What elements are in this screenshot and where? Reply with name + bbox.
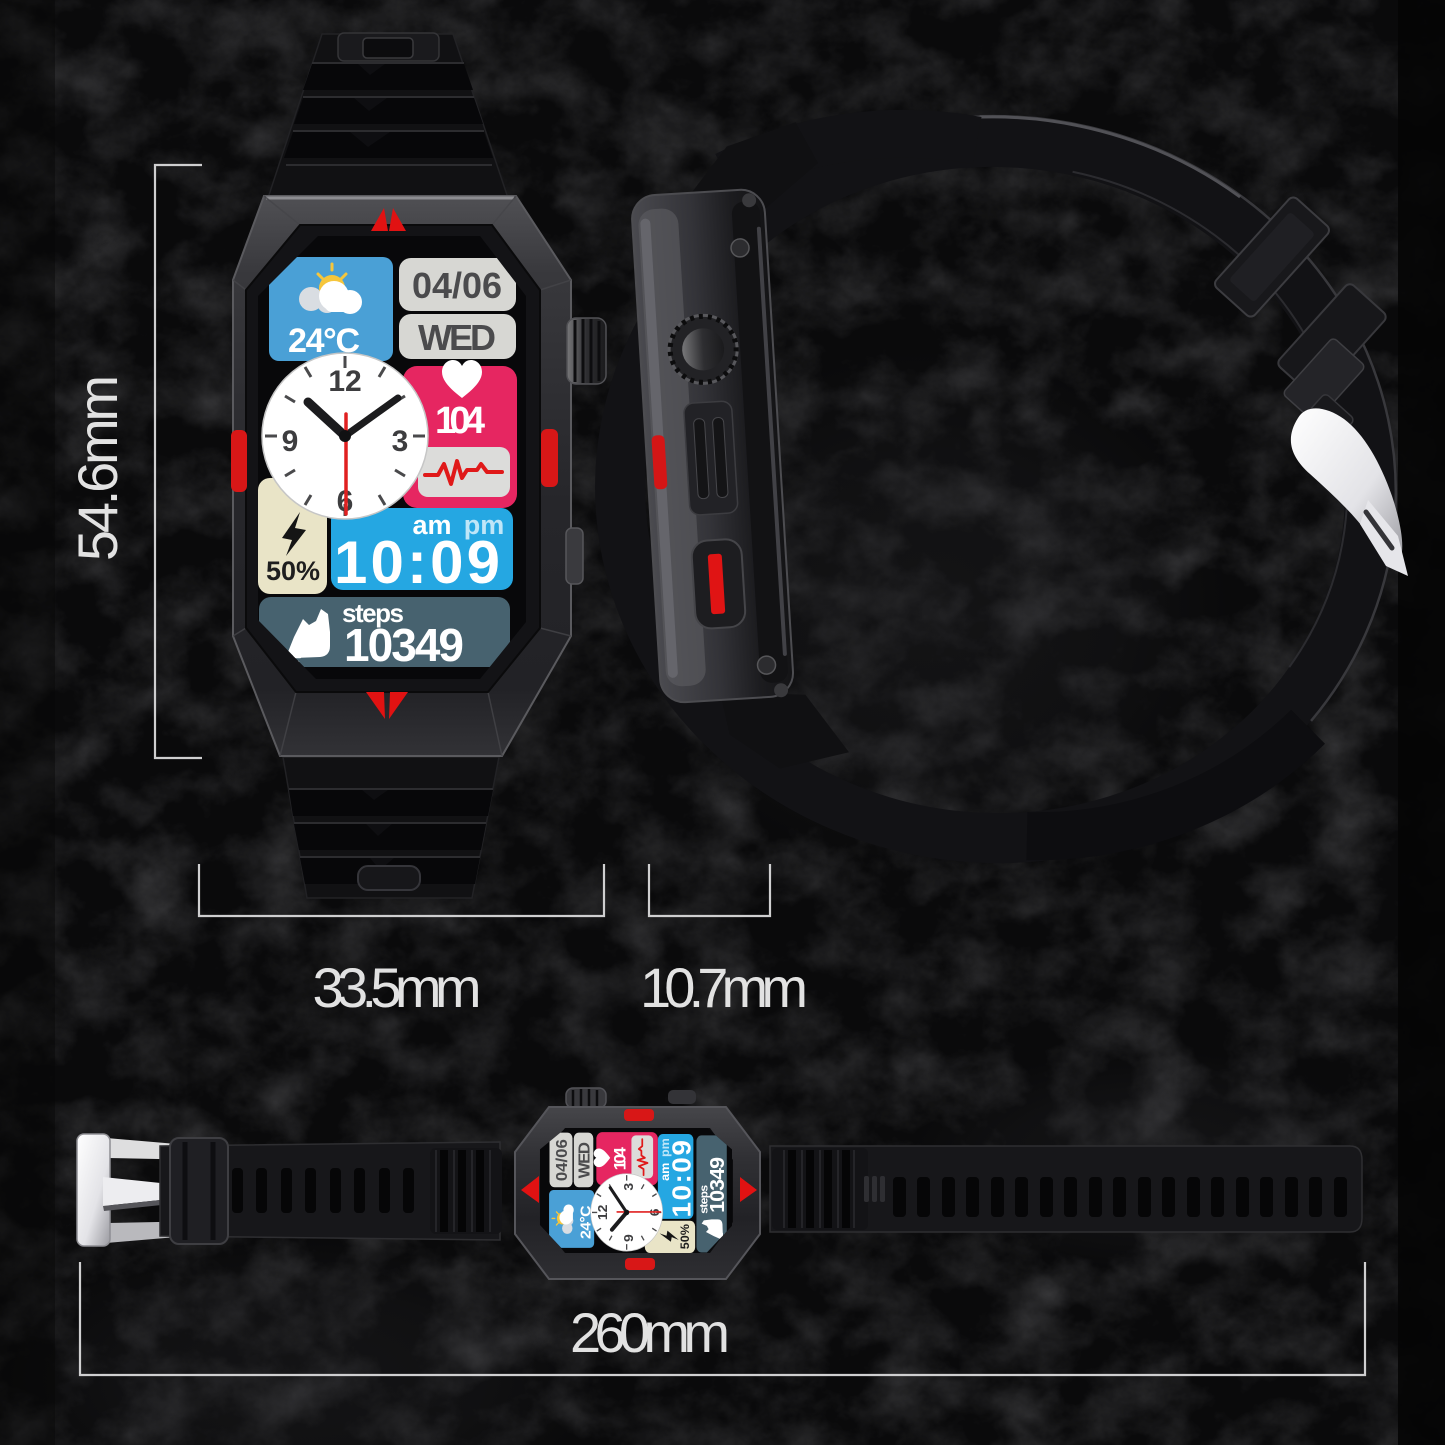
- svg-text:10349: 10349: [344, 619, 464, 671]
- svg-text:54.6mm: 54.6mm: [66, 375, 129, 561]
- svg-text:10:09: 10:09: [334, 529, 500, 596]
- svg-text:104: 104: [435, 400, 485, 442]
- svg-text:3: 3: [392, 425, 409, 458]
- svg-text:260mm: 260mm: [570, 1301, 730, 1364]
- svg-text:33.5mm: 33.5mm: [313, 956, 482, 1019]
- svg-text:04/06: 04/06: [412, 265, 502, 306]
- svg-text:12: 12: [328, 365, 361, 398]
- svg-text:50%: 50%: [266, 556, 320, 586]
- svg-text:10.7mm: 10.7mm: [640, 956, 808, 1019]
- svg-text:9: 9: [282, 425, 299, 458]
- svg-text:WED: WED: [418, 317, 496, 358]
